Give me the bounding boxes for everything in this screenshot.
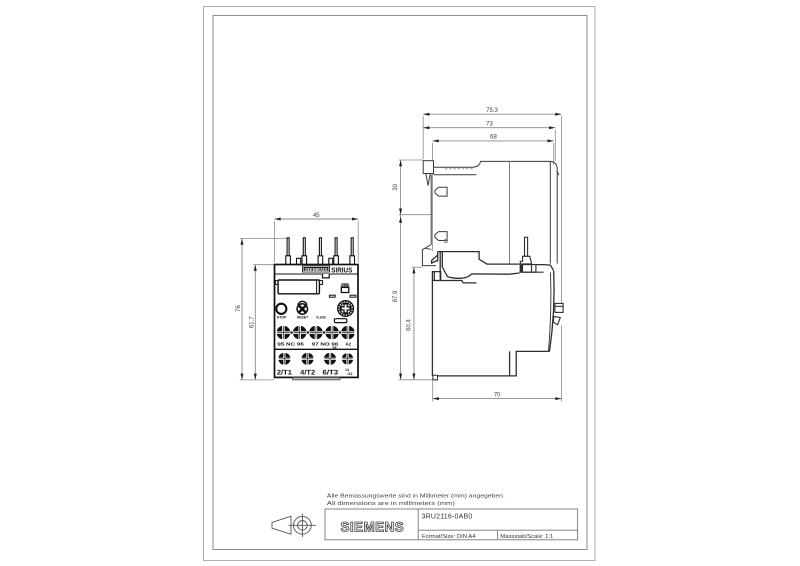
svg-text:70: 70 xyxy=(494,392,501,398)
svg-text:75.3: 75.3 xyxy=(486,108,498,114)
svg-text:Alle Bemassungswerte sind in M: Alle Bemassungswerte sind in Millimeter … xyxy=(327,493,505,499)
svg-text:SIEMENS: SIEMENS xyxy=(305,267,328,272)
svg-text:STOP: STOP xyxy=(277,314,287,319)
svg-text:76: 76 xyxy=(236,305,242,312)
svg-text:3RU2116-0AB0: 3RU2116-0AB0 xyxy=(422,513,473,520)
svg-text:A2: A2 xyxy=(346,342,352,347)
svg-text:2/T1: 2/T1 xyxy=(277,369,292,376)
svg-text:All dimensions are in millimet: All dimensions are in millimeters (mm) xyxy=(327,501,455,507)
svg-text:4/T2: 4/T2 xyxy=(300,369,315,376)
svg-text:/22: /22 xyxy=(348,372,353,376)
svg-text:45: 45 xyxy=(313,213,320,219)
svg-text:73: 73 xyxy=(486,121,493,127)
svg-text:SIRIUS: SIRIUS xyxy=(331,266,352,275)
svg-text:60.4: 60.4 xyxy=(407,319,413,331)
svg-text:CLASS: CLASS xyxy=(316,314,326,319)
svg-text:95 NC 96: 95 NC 96 xyxy=(277,342,304,347)
svg-text:87.9: 87.9 xyxy=(393,290,399,302)
svg-text:RESET: RESET xyxy=(297,314,309,319)
svg-text:SIEMENS: SIEMENS xyxy=(341,520,405,535)
svg-text:30: 30 xyxy=(393,183,399,190)
svg-text:68: 68 xyxy=(490,135,497,141)
svg-text:61.7: 61.7 xyxy=(249,316,255,328)
svg-text:Massstab/Scale: 1:1: Massstab/Scale: 1:1 xyxy=(500,534,553,540)
svg-text:Format/Size: DIN A4: Format/Size: DIN A4 xyxy=(422,534,476,540)
svg-text:6/T3: 6/T3 xyxy=(323,369,339,376)
